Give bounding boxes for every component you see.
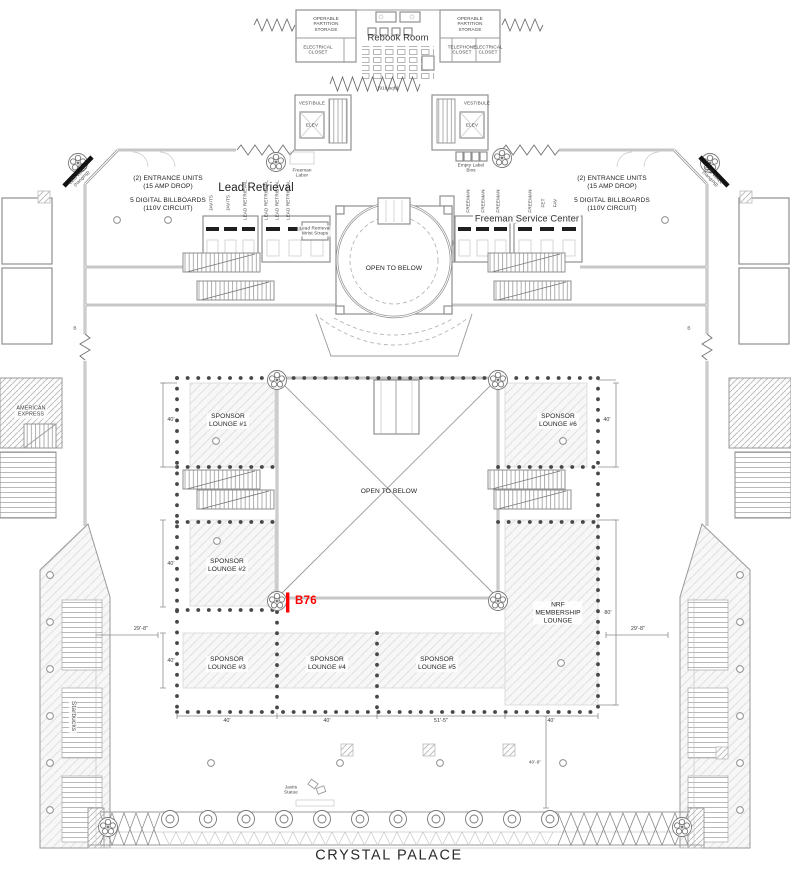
elevator-right-label: ELEV (466, 122, 478, 127)
rotunda (316, 198, 472, 356)
counter-label-lead-3: LEAD RETRIEVAL (274, 180, 279, 220)
counter-label-lead-1: LEAD RETRIEVAL (242, 180, 247, 220)
open-to-below-rotunda-label: OPEN TO BELOW (364, 265, 424, 273)
wrist-straps-label: Lead Retrieval Wrist Straps (297, 226, 332, 237)
telephone-closet-label: TELEPHONE CLOSET (448, 45, 477, 56)
american-express-label: AMERICAN EXPRESS (14, 406, 47, 419)
left-stairs (0, 452, 56, 518)
counter-label-javits-2: JAVITS (225, 195, 230, 211)
vestibule-right-label: VESTIBULE (464, 100, 490, 105)
crystal-palace-title: CRYSTAL PALACE (315, 847, 463, 864)
counter-label-fet: FET (540, 199, 545, 208)
freeman-service-center-heading: Freeman Service Center (473, 212, 581, 223)
left-stair-run (329, 99, 347, 143)
rebook-room-label: Rebook Room (367, 31, 428, 42)
counter-label-freeman-3: FREEMAN (495, 189, 500, 212)
storage-right-label: OPERABLE PARTITION STORAGE (457, 16, 483, 32)
dim-29-8-left: 29'-8" (134, 626, 148, 632)
sponsor-lounge-2-label: SPONSOR LOUNGE #2 (206, 558, 248, 574)
colonnade (88, 811, 702, 849)
lead-retrieval-heading: Lead Retrieval (218, 182, 294, 196)
atrium-column-nw (268, 371, 287, 390)
booth-b76-label[interactable]: B76 (295, 595, 317, 609)
freeman-labor-label: Freeman Labor (292, 168, 311, 179)
b-marker-left: B (73, 325, 76, 330)
electrical-closet-left-label: ELECTRICAL CLOSET (303, 45, 332, 56)
floor-plan: Rebook Room (916 sqft) OPERABLE PARTITIO… (0, 0, 791, 872)
counter-label-freeman-2: FREEMAN (480, 189, 485, 212)
starbucks-label: Starbucks (69, 699, 77, 733)
digital-billboards-left-label: 5 DIGITAL BILLBOARDS (110V CIRCUIT) (130, 197, 206, 213)
hatched-areas (0, 378, 791, 848)
right-stair-run (437, 99, 455, 143)
counter-label-freeman-1: FREEMAN (465, 189, 470, 212)
right-stairs (735, 452, 791, 518)
vestibule-left-label: VESTIBULE (299, 100, 325, 105)
sponsor-lounge-1-label: SPONSOR LOUNGE #1 (207, 413, 249, 429)
dim-29-8-right: 29'-8" (631, 626, 645, 632)
dim-80-nrf: 80' (604, 610, 611, 616)
floor-plan-drawing (0, 0, 791, 872)
dim-51-5-bottom: 51'-5" (434, 718, 448, 724)
sponsor-lounge-6-label: SPONSOR LOUNGE #6 (537, 413, 579, 429)
sponsor-lounge-4-label: SPONSOR LOUNGE #4 (306, 656, 348, 672)
counter-label-lead-2: LEAD RETRIEVAL (263, 180, 268, 220)
statue-pedestal (296, 800, 334, 806)
javits-statue-label: Javits Statue (284, 785, 298, 796)
empty-label-bins-label: Empty Label Bins (458, 163, 485, 174)
dim-40-lounge1: 40' (167, 417, 174, 423)
dim-40-lounge3: 40' (167, 658, 174, 664)
rebook-sqft-label: (916 sqft) (378, 85, 398, 90)
sponsor-lounge-5-label: SPONSOR LOUNGE #5 (416, 656, 458, 672)
counter-label-javits-1: JAVITS (208, 195, 213, 211)
electrical-closet-right-label: ELECTRICAL CLOSET (473, 45, 502, 56)
dim-40-lounge2: 40' (167, 561, 174, 567)
dim-40-lounge6: 40' (603, 417, 610, 423)
counter-label-lead-4: LEAD RETRIEVAL (285, 180, 290, 220)
atrium-column-ne (489, 371, 508, 390)
entrance-units-right-label: (2) ENTRANCE UNITS (15 AMP DROP) (577, 175, 647, 191)
counter-label-freeman-4: FREEMAN (527, 189, 532, 212)
dim-40-bottom-2: 40' (323, 718, 330, 724)
open-to-below-atrium-label: OPEN TO BELOW (361, 488, 417, 496)
entrance-units-left-label: (2) ENTRANCE UNITS (15 AMP DROP) (133, 175, 203, 191)
dim-40-8-vertical: 40'-8" (529, 759, 541, 764)
digital-billboards-right-label: 5 DIGITAL BILLBOARDS (110V CIRCUIT) (574, 197, 650, 213)
b-marker-right: B (687, 325, 690, 330)
counter-label-fav: FAV (552, 199, 557, 208)
booth-b76-highlight[interactable] (286, 593, 289, 613)
atrium-column-sw (268, 592, 287, 611)
dim-40-bottom-3: 40' (547, 718, 554, 724)
storage-left-label: OPERABLE PARTITION STORAGE (313, 16, 339, 32)
atrium-column-se (489, 592, 508, 611)
elevator-left-label: ELEV (306, 122, 318, 127)
dim-40-bottom-1: 40' (223, 718, 230, 724)
sponsor-lounge-3-label: SPONSOR LOUNGE #3 (206, 656, 248, 672)
nrf-membership-lounge-label: NRF MEMBERSHIP LOUNGE (533, 601, 582, 624)
